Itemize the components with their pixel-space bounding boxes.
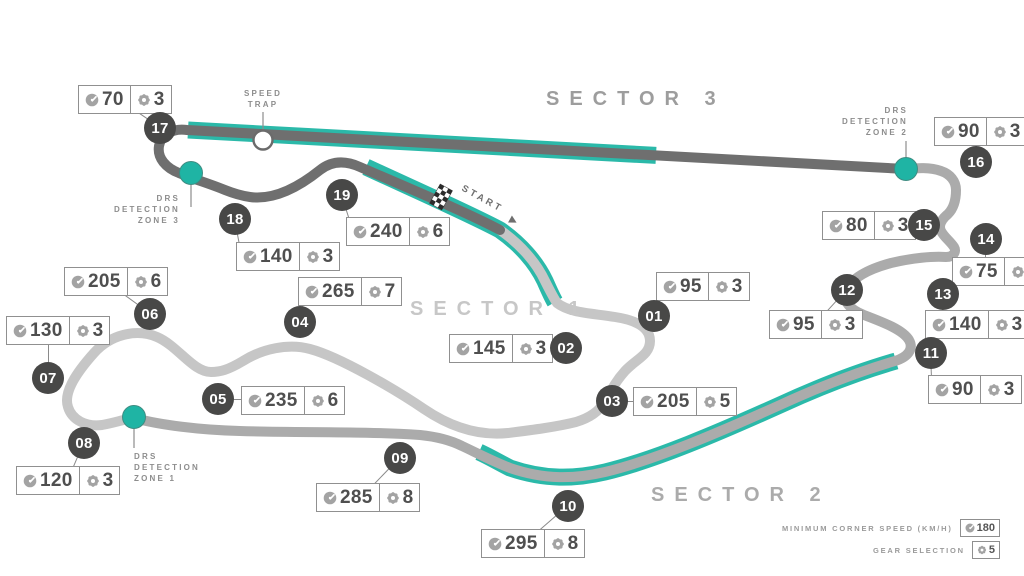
- drs-zone3-line3: ZONE 3: [80, 215, 180, 226]
- speedometer-icon: [776, 318, 790, 332]
- speed-gear-box: 265 7: [298, 277, 402, 306]
- gear-cell: 8: [379, 484, 420, 511]
- drs-zone3-line2: DETECTION: [80, 204, 180, 215]
- speed-trap-label-line1: SPEED: [223, 88, 303, 99]
- gear-value: 3: [1012, 314, 1023, 336]
- gear-cell: 6: [127, 268, 168, 295]
- gear-value: 3: [323, 246, 334, 268]
- turn-badge: 17: [144, 112, 176, 144]
- turn-badge: 04: [284, 306, 316, 338]
- turn-badge: 05: [202, 383, 234, 415]
- gear-icon: [987, 383, 1001, 397]
- speedometer-icon: [941, 125, 955, 139]
- speed-cell: 205: [65, 268, 127, 295]
- speed-gear-box: 295 8: [481, 529, 585, 558]
- speedometer-icon: [305, 285, 319, 299]
- speedometer-icon: [965, 523, 975, 533]
- speed-cell: 285: [317, 484, 379, 511]
- gear-icon: [1011, 265, 1024, 279]
- gear-value: 3: [154, 89, 165, 111]
- legend-gear-value: 5: [989, 544, 995, 556]
- speed-cell: 75: [953, 258, 1004, 285]
- speed-cell: 205: [634, 388, 696, 415]
- speed-cell: 80: [823, 212, 874, 239]
- gear-value: 3: [536, 338, 547, 360]
- speed-value: 95: [680, 276, 702, 298]
- speedometer-icon: [456, 342, 470, 356]
- drs-zone2-line1: DRS: [808, 105, 908, 116]
- speedometer-icon: [248, 394, 262, 408]
- speed-cell: 235: [242, 387, 304, 414]
- speed-gear-box: 75 3: [952, 257, 1024, 286]
- speed-value: 235: [265, 390, 298, 412]
- speed-gear-box: 140 3: [925, 310, 1024, 339]
- gear-icon: [416, 225, 430, 239]
- gear-cell: 6: [409, 218, 450, 245]
- gear-icon: [519, 342, 533, 356]
- speed-gear-box: 285 8: [316, 483, 420, 512]
- gear-icon: [306, 250, 320, 264]
- gear-cell: 7: [361, 278, 402, 305]
- speed-gear-box: 95 3: [769, 310, 863, 339]
- turn-badge: 02: [550, 332, 582, 364]
- drs-zone2-line2: DETECTION: [808, 116, 908, 127]
- gear-value: 3: [1004, 379, 1015, 401]
- gear-cell: 3: [988, 311, 1024, 338]
- legend-gear-row: GEAR SELECTION 5: [873, 541, 1000, 559]
- speed-value: 95: [793, 314, 815, 336]
- speed-value: 240: [370, 221, 403, 243]
- speed-cell: 90: [929, 376, 980, 403]
- gear-cell: 5: [696, 388, 737, 415]
- speed-value: 285: [340, 487, 373, 509]
- gear-cell: 3: [512, 335, 553, 362]
- speedometer-icon: [959, 265, 973, 279]
- speed-cell: 130: [7, 317, 69, 344]
- speed-cell: 265: [299, 278, 361, 305]
- turn-badge: 07: [32, 362, 64, 394]
- gear-value: 6: [328, 390, 339, 412]
- gear-icon: [977, 545, 987, 555]
- gear-value: 8: [403, 487, 414, 509]
- speed-value: 80: [846, 215, 868, 237]
- drs-zone1-line1: DRS: [134, 451, 200, 462]
- speed-value: 140: [949, 314, 982, 336]
- gear-cell: 3: [130, 86, 171, 113]
- speed-value: 90: [952, 379, 974, 401]
- turn-badge: 18: [219, 203, 251, 235]
- gear-value: 6: [151, 271, 162, 293]
- speed-value: 90: [958, 121, 980, 143]
- speed-gear-box: 235 6: [241, 386, 345, 415]
- speedometer-icon: [13, 324, 27, 338]
- gear-value: 8: [568, 533, 579, 555]
- speedometer-icon: [932, 318, 946, 332]
- gear-cell: 3: [1004, 258, 1024, 285]
- gear-icon: [386, 491, 400, 505]
- speed-gear-box: 205 6: [64, 267, 168, 296]
- speedometer-icon: [488, 537, 502, 551]
- speed-cell: 70: [79, 86, 130, 113]
- gear-cell: 3: [69, 317, 110, 344]
- gear-icon: [137, 93, 151, 107]
- speed-gear-box: 240 6: [346, 217, 450, 246]
- speed-value: 120: [40, 470, 73, 492]
- gear-icon: [881, 219, 895, 233]
- speedometer-icon: [935, 383, 949, 397]
- speed-value: 145: [473, 338, 506, 360]
- gear-icon: [551, 537, 565, 551]
- gear-cell: 3: [980, 376, 1021, 403]
- gear-icon: [715, 280, 729, 294]
- speed-cell: 95: [770, 311, 821, 338]
- drs-zone2-line3: ZONE 2: [808, 127, 908, 138]
- legend-speed-value: 180: [977, 522, 995, 534]
- gear-cell: 3: [708, 273, 749, 300]
- speed-cell: 120: [17, 467, 79, 494]
- speedometer-icon: [829, 219, 843, 233]
- speed-gear-box: 70 3: [78, 85, 172, 114]
- gear-value: 3: [898, 215, 909, 237]
- speed-gear-box: 120 3: [16, 466, 120, 495]
- sector3-label: SECTOR 3: [546, 88, 726, 111]
- gear-cell: 6: [304, 387, 345, 414]
- speedometer-icon: [353, 225, 367, 239]
- gear-value: 6: [433, 221, 444, 243]
- speed-gear-box: 90 3: [934, 117, 1024, 146]
- speed-gear-box: 90 3: [928, 375, 1022, 404]
- turn-badge: 09: [384, 442, 416, 474]
- speed-gear-box: 80 3: [822, 211, 916, 240]
- gear-icon: [828, 318, 842, 332]
- turn-badge: 11: [915, 337, 947, 369]
- start-arrow-icon: [508, 216, 518, 227]
- gear-value: 3: [93, 320, 104, 342]
- sector1-label: SECTOR 1: [410, 298, 590, 321]
- drs-zone1-line3: ZONE 1: [134, 473, 200, 484]
- drs-zone2-label: DRS DETECTION ZONE 2: [808, 105, 908, 138]
- speed-value: 295: [505, 533, 538, 555]
- legend-gear-box: 5: [972, 541, 1000, 559]
- gear-cell: 3: [79, 467, 120, 494]
- turn-badge: 14: [970, 223, 1002, 255]
- speed-gear-box: 140 3: [236, 242, 340, 271]
- drs-detection-dot-2: [895, 158, 918, 181]
- speed-gear-box: 205 5: [633, 387, 737, 416]
- gear-cell: 3: [299, 243, 340, 270]
- gear-icon: [76, 324, 90, 338]
- speedometer-icon: [323, 491, 337, 505]
- turn-badge: 03: [596, 385, 628, 417]
- turn-badge: 08: [68, 427, 100, 459]
- gear-value: 5: [720, 391, 731, 413]
- drs-detection-dot-3: [180, 162, 203, 185]
- drs-zone3-label: DRS DETECTION ZONE 3: [80, 193, 180, 226]
- speed-cell: 90: [935, 118, 986, 145]
- speedometer-icon: [640, 395, 654, 409]
- speed-cell: 95: [657, 273, 708, 300]
- speed-value: 70: [102, 89, 124, 111]
- speedometer-icon: [71, 275, 85, 289]
- drs-zone3-line1: DRS: [80, 193, 180, 204]
- gear-icon: [134, 275, 148, 289]
- turn-badge: 19: [326, 179, 358, 211]
- speed-cell: 140: [237, 243, 299, 270]
- gear-icon: [995, 318, 1009, 332]
- gear-icon: [703, 395, 717, 409]
- gear-icon: [311, 394, 325, 408]
- gear-icon: [86, 474, 100, 488]
- gear-cell: 8: [544, 530, 585, 557]
- circuit-map: START SECTOR 1 SECTOR 2 SECTOR 3 SPEED T…: [0, 0, 1024, 576]
- turn-badge: 06: [134, 298, 166, 330]
- gear-cell: 3: [986, 118, 1024, 145]
- gear-value: 3: [732, 276, 743, 298]
- speedometer-icon: [23, 474, 37, 488]
- speed-cell: 145: [450, 335, 512, 362]
- speed-value: 205: [657, 391, 690, 413]
- speed-value: 75: [976, 261, 998, 283]
- speed-gear-box: 145 3: [449, 334, 553, 363]
- speed-gear-box: 95 3: [656, 272, 750, 301]
- turn-badge: 15: [908, 209, 940, 241]
- gear-value: 3: [845, 314, 856, 336]
- speed-value: 140: [260, 246, 293, 268]
- gear-value: 7: [385, 281, 396, 303]
- speed-trap-label-line2: TRAP: [223, 99, 303, 110]
- gear-icon: [368, 285, 382, 299]
- drs-detection-dot-1: [123, 406, 146, 429]
- drs-zone1-label: DRS DETECTION ZONE 1: [134, 451, 200, 484]
- speed-cell: 295: [482, 530, 544, 557]
- speed-trap-label: SPEED TRAP: [223, 88, 303, 110]
- speed-cell: 240: [347, 218, 409, 245]
- turn-badge: 01: [638, 300, 670, 332]
- speedometer-icon: [243, 250, 257, 264]
- speed-cell: 140: [926, 311, 988, 338]
- speedometer-icon: [85, 93, 99, 107]
- gear-value: 3: [1010, 121, 1021, 143]
- speed-value: 265: [322, 281, 355, 303]
- turn-badge: 12: [831, 274, 863, 306]
- gear-cell: 3: [821, 311, 862, 338]
- sector2-label: SECTOR 2: [651, 484, 831, 507]
- speed-trap-marker: [254, 131, 273, 150]
- speedometer-icon: [663, 280, 677, 294]
- gear-icon: [993, 125, 1007, 139]
- speed-gear-box: 130 3: [6, 316, 110, 345]
- legend-speed-row: MINIMUM CORNER SPEED (KM/H) 180: [782, 519, 1000, 537]
- gear-value: 3: [103, 470, 114, 492]
- drs-zone1-line2: DETECTION: [134, 462, 200, 473]
- turn-badge: 16: [960, 146, 992, 178]
- legend-speed-box: 180: [960, 519, 1000, 537]
- legend: MINIMUM CORNER SPEED (KM/H) 180 GEAR SEL…: [782, 519, 1000, 559]
- legend-speed-label: MINIMUM CORNER SPEED (KM/H): [782, 524, 953, 533]
- legend-gear-label: GEAR SELECTION: [873, 546, 965, 555]
- speed-value: 130: [30, 320, 63, 342]
- turn-badge: 10: [552, 490, 584, 522]
- turn-badge: 13: [927, 278, 959, 310]
- speed-value: 205: [88, 271, 121, 293]
